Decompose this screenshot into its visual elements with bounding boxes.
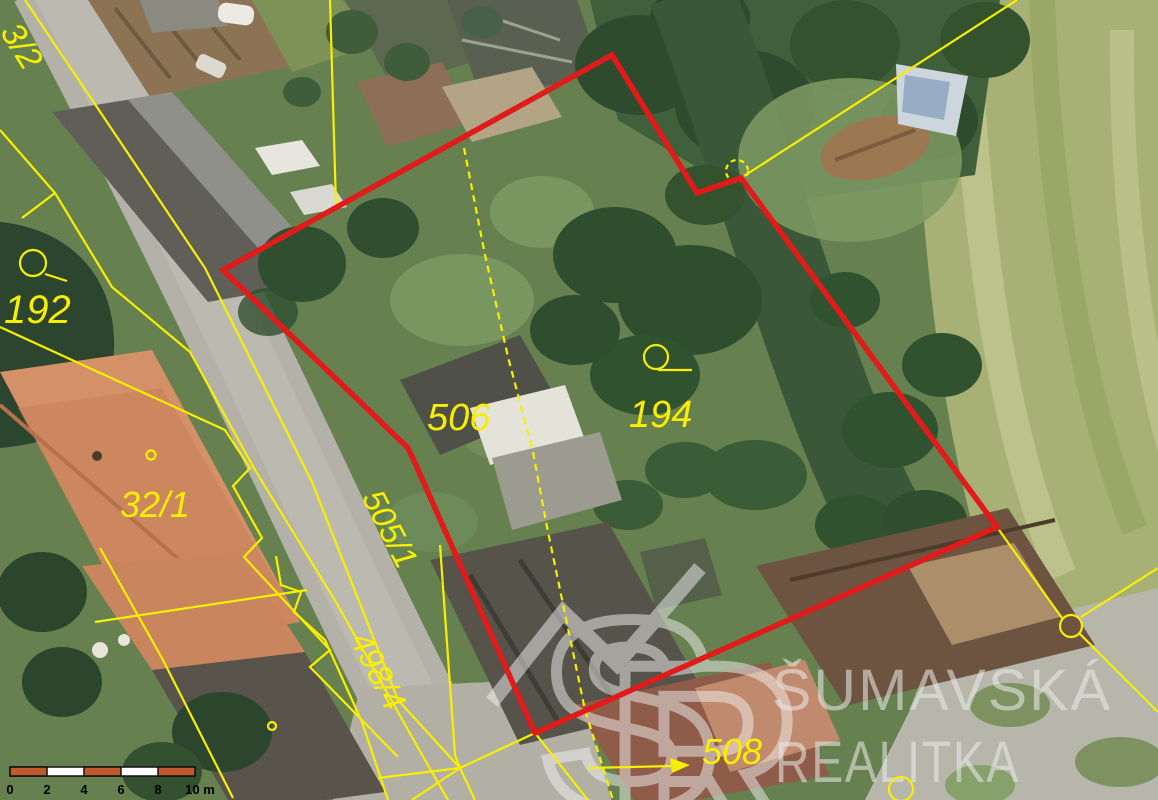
scale-tick-10m: 10 m: [185, 782, 215, 797]
watermark-line1: ŠUMAVSKÁ: [772, 658, 1112, 723]
parcel-label-508: 508: [702, 731, 762, 772]
scale-tick-0: 0: [6, 782, 13, 797]
scale-tick-2: 2: [43, 782, 50, 797]
cadastral-map-screenshot: S R ŠUMAVSKÁ REALITKA: [0, 0, 1158, 800]
parcel-label-506: 506: [427, 397, 491, 439]
parcel-label-192: 192: [4, 288, 71, 332]
cadastral-map-image: S R ŠUMAVSKÁ REALITKA: [0, 0, 1158, 800]
scale-tick-6: 6: [117, 782, 124, 797]
watermark-line2: REALITKA: [775, 730, 1020, 795]
scale-tick-8: 8: [154, 782, 161, 797]
parcel-label-32-1: 32/1: [120, 484, 190, 525]
parcel-label-194: 194: [629, 394, 692, 436]
scale-tick-4: 4: [80, 782, 88, 797]
